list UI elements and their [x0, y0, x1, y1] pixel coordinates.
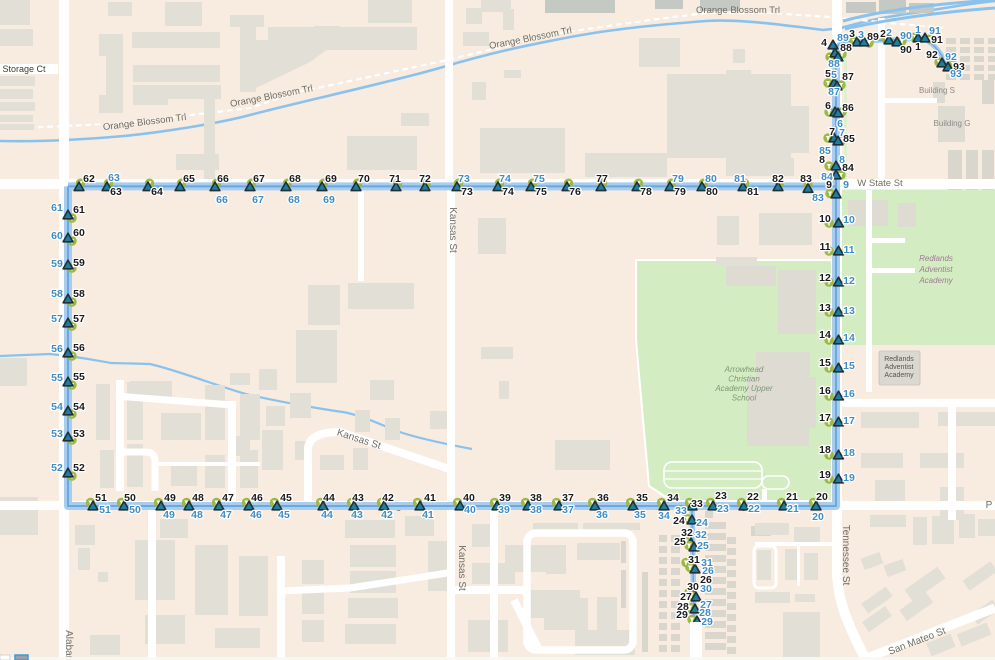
svg-text:34: 34 — [658, 510, 670, 522]
svg-text:57: 57 — [73, 313, 85, 325]
svg-text:23: 23 — [715, 490, 727, 502]
svg-text:56: 56 — [73, 342, 85, 354]
svg-text:61: 61 — [51, 202, 63, 214]
svg-text:34: 34 — [667, 492, 679, 504]
svg-text:50: 50 — [124, 492, 136, 504]
svg-text:Building S: Building S — [919, 86, 955, 95]
svg-text:67: 67 — [253, 173, 265, 185]
svg-text:37: 37 — [562, 492, 574, 504]
svg-text:54: 54 — [73, 401, 85, 413]
svg-text:Adventist: Adventist — [885, 364, 914, 371]
svg-text:86: 86 — [842, 102, 854, 114]
svg-text:19: 19 — [819, 469, 831, 481]
svg-text:51: 51 — [95, 492, 107, 504]
svg-text:75: 75 — [533, 173, 545, 185]
svg-text:70: 70 — [358, 173, 370, 185]
svg-text:52: 52 — [51, 462, 63, 474]
svg-text:79: 79 — [672, 173, 684, 185]
svg-text:88: 88 — [828, 58, 840, 70]
svg-text:15: 15 — [819, 357, 831, 369]
svg-text:14: 14 — [819, 329, 831, 341]
svg-text:46: 46 — [250, 509, 262, 521]
svg-text:Alabama St: Alabama St — [63, 630, 74, 660]
svg-text:20: 20 — [816, 491, 828, 503]
svg-text:61: 61 — [73, 204, 85, 216]
svg-text:36: 36 — [597, 492, 609, 504]
svg-text:7: 7 — [839, 127, 845, 139]
svg-text:41: 41 — [424, 492, 436, 504]
svg-text:25: 25 — [697, 540, 709, 552]
svg-text:11: 11 — [819, 241, 830, 253]
svg-text:72: 72 — [419, 173, 431, 185]
svg-text:89: 89 — [837, 32, 849, 44]
svg-text:6: 6 — [825, 100, 831, 112]
svg-text:57: 57 — [51, 313, 63, 325]
svg-text:80: 80 — [705, 173, 717, 185]
svg-text:30: 30 — [687, 581, 699, 593]
svg-text:80: 80 — [706, 186, 718, 198]
svg-text:2: 2 — [886, 27, 892, 39]
svg-text:17: 17 — [819, 412, 831, 424]
svg-text:Orange Blossom Trl: Orange Blossom Trl — [696, 5, 780, 16]
svg-text:48: 48 — [192, 492, 204, 504]
svg-text:23: 23 — [717, 503, 729, 515]
svg-text:4: 4 — [821, 37, 827, 49]
svg-text:48: 48 — [191, 509, 203, 521]
svg-text:16: 16 — [819, 385, 831, 397]
svg-text:Academy: Academy — [918, 276, 953, 285]
svg-text:85: 85 — [843, 133, 855, 145]
svg-text:24: 24 — [696, 517, 708, 529]
svg-text:49: 49 — [164, 492, 176, 504]
svg-text:81: 81 — [747, 186, 759, 198]
svg-text:84: 84 — [821, 171, 833, 183]
svg-text:11: 11 — [843, 244, 854, 256]
svg-text:22: 22 — [747, 491, 759, 503]
svg-text:Redlands: Redlands — [919, 254, 953, 263]
svg-text:33: 33 — [691, 498, 703, 510]
svg-text:44: 44 — [321, 509, 333, 521]
svg-text:10: 10 — [819, 213, 831, 225]
svg-text:52: 52 — [73, 462, 85, 474]
svg-text:36: 36 — [596, 509, 608, 521]
svg-text:8: 8 — [839, 154, 845, 166]
svg-text:10: 10 — [843, 214, 855, 226]
svg-text:76: 76 — [569, 186, 581, 198]
svg-text:68: 68 — [288, 194, 300, 206]
svg-text:53: 53 — [73, 428, 85, 440]
svg-text:66: 66 — [217, 173, 229, 185]
svg-text:39: 39 — [499, 492, 511, 504]
svg-text:P: P — [986, 500, 993, 511]
svg-text:64: 64 — [151, 186, 163, 198]
svg-text:66: 66 — [216, 194, 228, 206]
svg-text:17: 17 — [843, 415, 855, 427]
svg-text:85: 85 — [819, 145, 831, 157]
svg-text:40: 40 — [464, 504, 476, 516]
svg-text:Adventist: Adventist — [919, 265, 954, 274]
svg-text:42: 42 — [381, 509, 393, 521]
svg-text:47: 47 — [220, 509, 232, 521]
svg-text:49: 49 — [163, 509, 175, 521]
svg-text:42: 42 — [382, 492, 394, 504]
svg-text:62: 62 — [83, 173, 95, 185]
svg-text:45: 45 — [278, 509, 290, 521]
svg-text:54: 54 — [51, 401, 63, 413]
svg-text:65: 65 — [183, 173, 195, 185]
svg-text:31: 31 — [688, 554, 700, 566]
svg-text:32: 32 — [681, 527, 693, 539]
svg-text:School: School — [732, 394, 757, 403]
svg-text:83: 83 — [812, 192, 824, 204]
svg-text:47: 47 — [222, 492, 234, 504]
svg-text:43: 43 — [352, 492, 364, 504]
svg-text:18: 18 — [843, 447, 855, 459]
svg-text:91: 91 — [929, 25, 941, 37]
svg-text:68: 68 — [289, 173, 301, 185]
svg-text:Christian: Christian — [728, 375, 760, 384]
svg-text:Tennessee St: Tennessee St — [840, 525, 851, 586]
svg-text:Storage Ct: Storage Ct — [2, 64, 46, 74]
svg-text:Academy: Academy — [884, 372, 914, 379]
svg-text:92: 92 — [945, 51, 957, 63]
svg-text:58: 58 — [51, 288, 63, 300]
svg-text:31: 31 — [701, 557, 713, 569]
svg-text:18: 18 — [819, 444, 831, 456]
svg-text:3: 3 — [849, 28, 855, 40]
svg-text:20: 20 — [812, 511, 824, 523]
svg-text:69: 69 — [325, 173, 337, 185]
svg-text:90: 90 — [900, 44, 912, 56]
svg-text:43: 43 — [351, 509, 363, 521]
svg-text:60: 60 — [73, 227, 85, 239]
svg-text:82: 82 — [772, 173, 784, 185]
svg-text:93: 93 — [950, 68, 962, 80]
svg-text:12: 12 — [843, 275, 855, 287]
svg-text:Redlands: Redlands — [884, 356, 914, 363]
svg-text:35: 35 — [636, 492, 648, 504]
svg-text:Kansas St: Kansas St — [447, 207, 458, 253]
svg-text:16: 16 — [843, 388, 855, 400]
svg-text:73: 73 — [458, 173, 470, 185]
svg-text:21: 21 — [787, 503, 799, 515]
svg-text:59: 59 — [51, 258, 63, 270]
svg-text:87: 87 — [828, 86, 840, 98]
svg-text:87: 87 — [842, 71, 854, 83]
svg-text:29: 29 — [676, 609, 688, 621]
svg-text:33: 33 — [675, 505, 687, 517]
svg-text:30: 30 — [700, 583, 712, 595]
svg-text:63: 63 — [110, 186, 122, 198]
svg-text:Arrowhead: Arrowhead — [724, 365, 764, 374]
svg-text:55: 55 — [51, 372, 63, 384]
svg-text:W State St: W State St — [857, 178, 903, 189]
svg-text:38: 38 — [530, 504, 542, 516]
svg-text:22: 22 — [748, 503, 760, 515]
svg-text:9: 9 — [843, 179, 849, 191]
svg-text:69: 69 — [323, 194, 335, 206]
svg-text:59: 59 — [73, 257, 85, 269]
svg-text:13: 13 — [843, 305, 855, 317]
svg-text:19: 19 — [843, 472, 855, 484]
svg-text:15: 15 — [843, 360, 855, 372]
svg-text:75: 75 — [535, 186, 547, 198]
svg-text:40: 40 — [463, 492, 475, 504]
svg-text:44: 44 — [323, 492, 335, 504]
svg-text:45: 45 — [280, 492, 292, 504]
svg-text:35: 35 — [634, 509, 646, 521]
svg-text:38: 38 — [530, 492, 542, 504]
svg-text:60: 60 — [51, 230, 63, 242]
svg-text:32: 32 — [695, 529, 707, 541]
svg-text:29: 29 — [701, 616, 713, 628]
svg-text:39: 39 — [498, 504, 510, 516]
svg-text:5: 5 — [831, 69, 837, 81]
svg-text:55: 55 — [73, 371, 85, 383]
svg-text:Kansas St: Kansas St — [456, 545, 467, 591]
svg-text:7: 7 — [829, 126, 835, 138]
svg-text:63: 63 — [108, 172, 120, 184]
svg-text:13: 13 — [819, 302, 831, 314]
svg-text:37: 37 — [562, 504, 574, 516]
svg-text:73: 73 — [461, 186, 473, 198]
svg-text:53: 53 — [51, 428, 63, 440]
svg-text:74: 74 — [502, 186, 514, 198]
svg-text:1: 1 — [915, 41, 921, 53]
svg-text:92: 92 — [926, 49, 938, 61]
svg-text:71: 71 — [389, 173, 401, 185]
svg-text:Academy Upper: Academy Upper — [714, 384, 773, 393]
svg-text:50: 50 — [129, 504, 141, 516]
svg-text:67: 67 — [252, 194, 264, 206]
svg-text:21: 21 — [786, 491, 798, 503]
svg-text:1: 1 — [915, 24, 921, 36]
svg-text:Building G: Building G — [934, 119, 971, 128]
svg-text:74: 74 — [499, 173, 511, 185]
svg-text:90: 90 — [900, 30, 912, 42]
svg-text:14: 14 — [843, 332, 855, 344]
svg-text:77: 77 — [596, 173, 608, 185]
svg-text:79: 79 — [674, 186, 686, 198]
svg-text:46: 46 — [251, 492, 263, 504]
svg-text:51: 51 — [99, 504, 111, 516]
svg-text:78: 78 — [640, 186, 652, 198]
svg-text:89: 89 — [867, 31, 879, 43]
svg-text:3: 3 — [858, 29, 864, 41]
svg-text:41: 41 — [422, 509, 434, 521]
svg-text:81: 81 — [734, 173, 746, 185]
svg-text:83: 83 — [800, 173, 812, 185]
svg-text:58: 58 — [73, 288, 85, 300]
svg-text:56: 56 — [51, 343, 63, 355]
svg-text:12: 12 — [819, 272, 831, 284]
